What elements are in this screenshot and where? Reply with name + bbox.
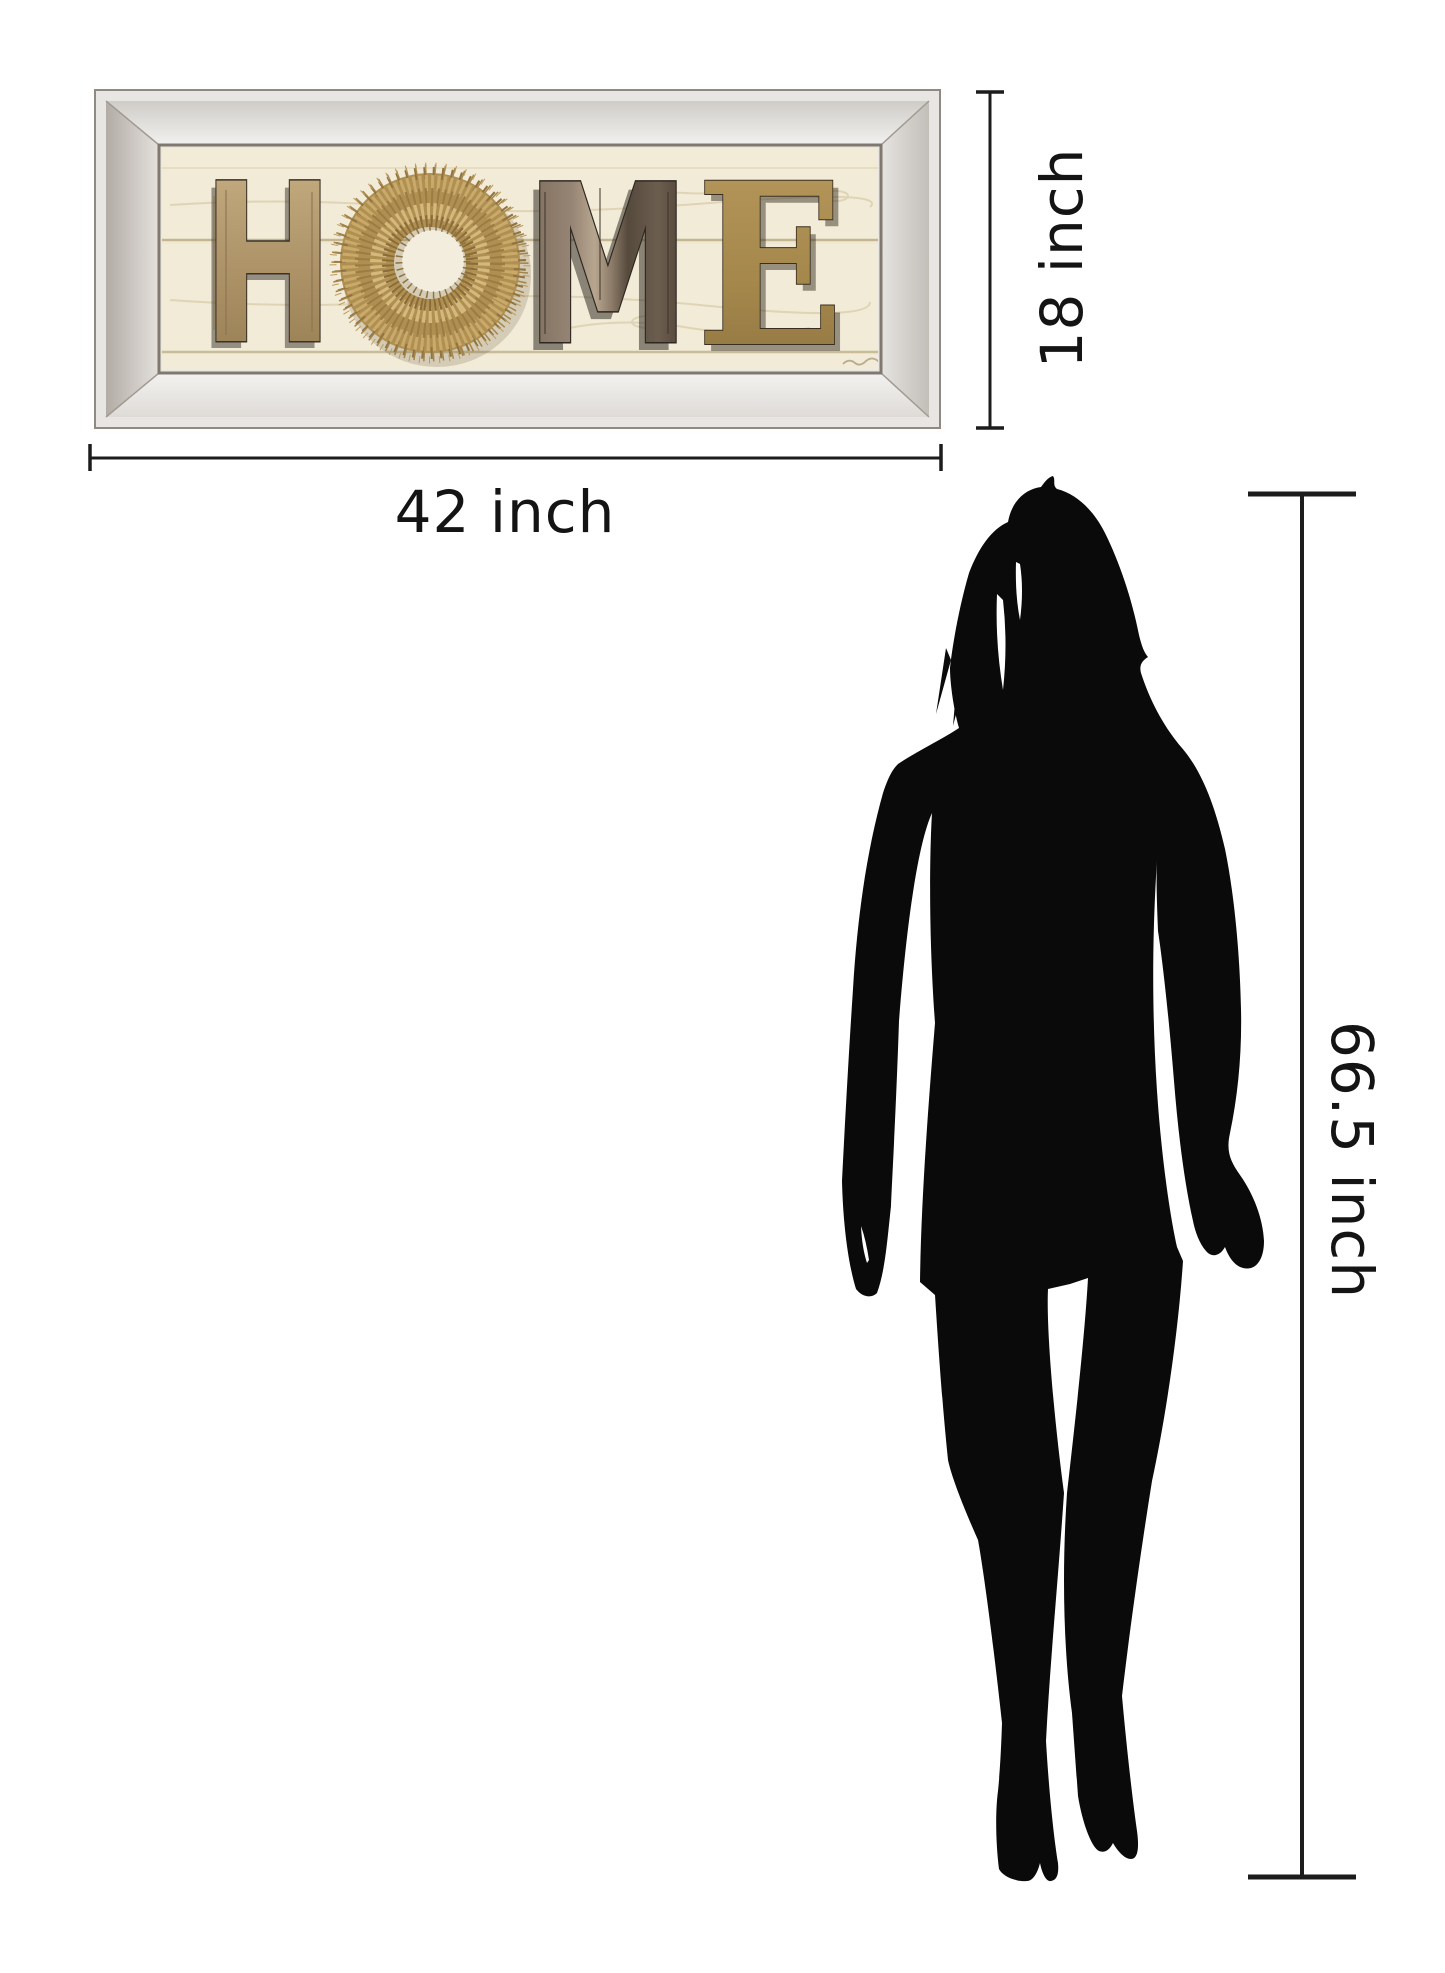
product-dimension-diagram: H H <box>0 0 1445 1973</box>
frame-bevel-right <box>881 101 929 417</box>
svg-text:H: H <box>202 137 334 393</box>
framed-art: H H <box>95 90 940 428</box>
svg-text:E: E <box>696 134 844 397</box>
frame-bevel-bottom <box>106 373 929 417</box>
person-height-dimension-line <box>1248 494 1356 1877</box>
letter-m: M M <box>518 138 691 402</box>
diagram-canvas: H H <box>0 0 1445 1973</box>
home-art-print: H H <box>162 126 888 404</box>
letter-e: E E <box>696 134 850 404</box>
width-dimension-line <box>90 444 941 471</box>
frame-bevel-top <box>106 101 929 145</box>
svg-text:M: M <box>525 138 691 394</box>
height-dimension-line <box>976 92 1004 428</box>
woman-silhouette <box>842 476 1264 1881</box>
frame-bevel-left <box>106 101 159 417</box>
woman-silhouette-body <box>842 476 1264 1881</box>
letter-h: H H <box>197 137 334 400</box>
